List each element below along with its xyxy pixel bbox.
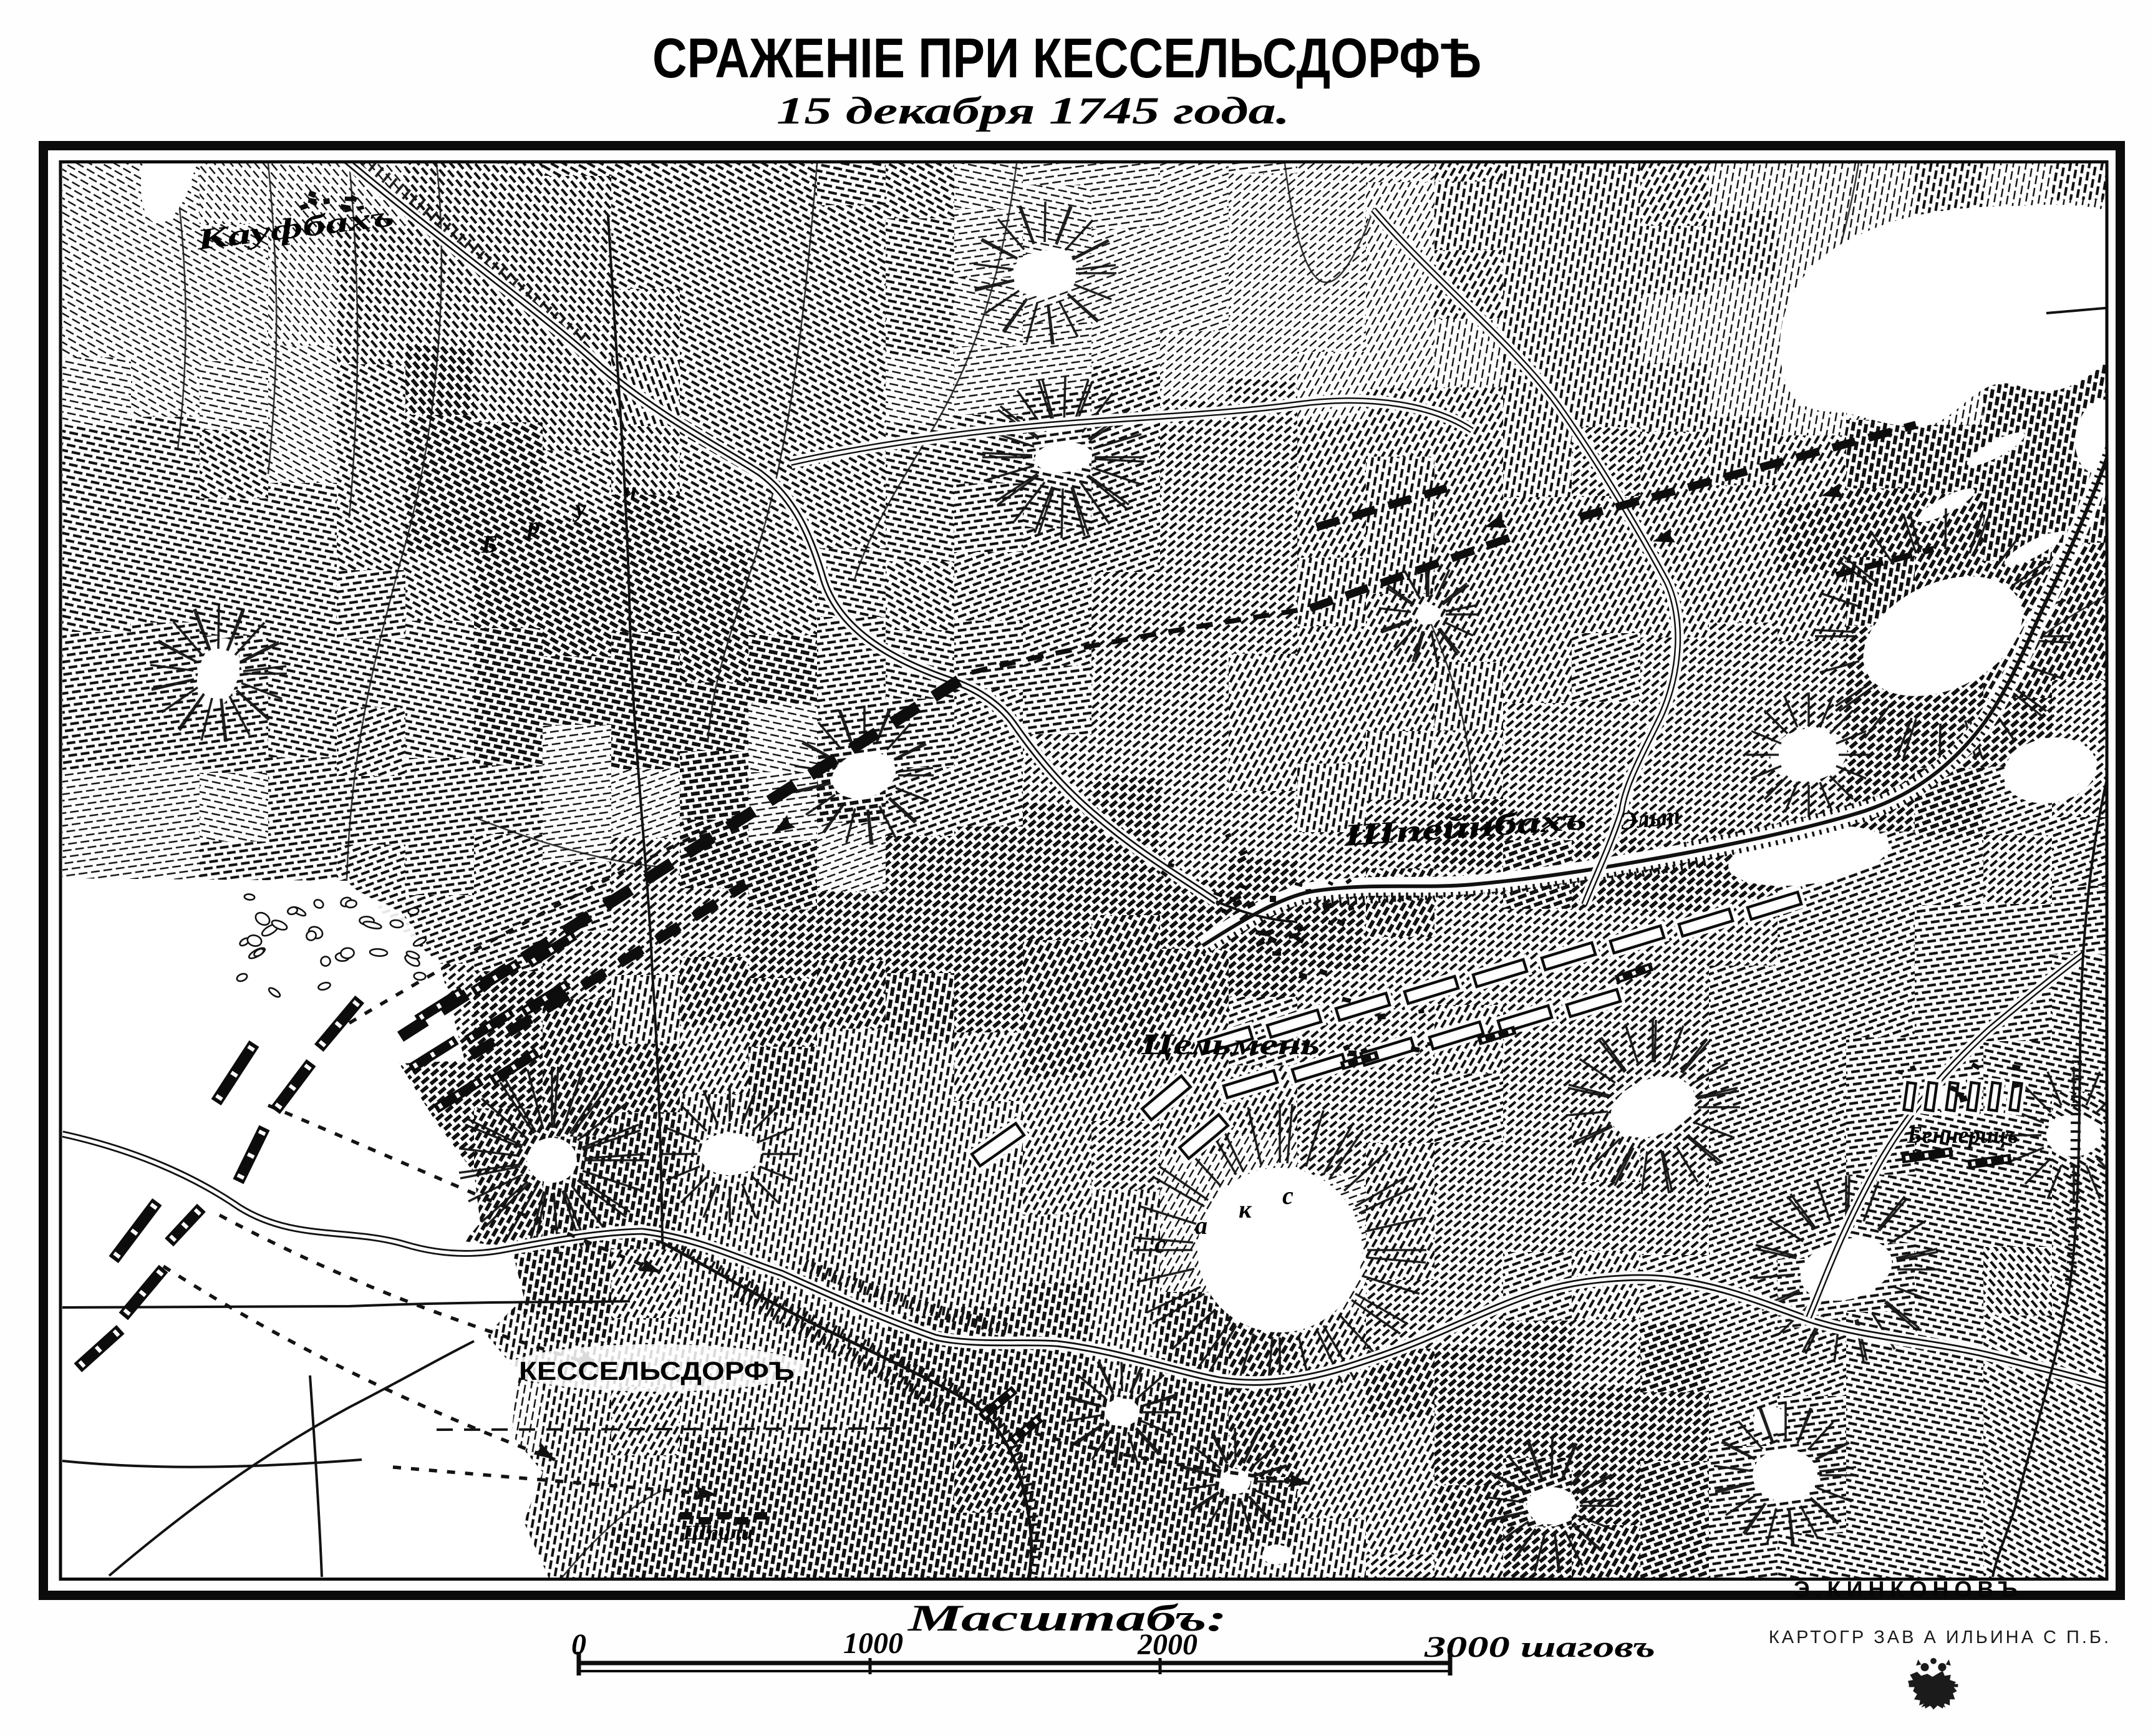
svg-text:с: с xyxy=(1282,1181,1294,1210)
svg-text:КАРТОГР ЗАВ А ИЛЬИНА С П.Б: КАРТОГР ЗАВ А ИЛЬИНА С П.Б. xyxy=(1769,1627,2111,1647)
svg-text:1000: 1000 xyxy=(843,1627,903,1660)
svg-text:Б: Б xyxy=(481,530,497,558)
svg-text:2000: 2000 xyxy=(1137,1628,1197,1661)
svg-text:Цельмень: Цельмень xyxy=(1141,1028,1320,1061)
svg-text:Шпили: Шпили xyxy=(682,1521,753,1544)
svg-text:Беннерицъ: Беннерицъ xyxy=(1907,1122,2018,1148)
svg-text:у: у xyxy=(573,494,586,522)
svg-text:р: р xyxy=(526,512,540,540)
svg-text:а: а xyxy=(1195,1211,1207,1239)
svg-text:с: с xyxy=(1154,1230,1166,1258)
svg-text:15 декабря 1745 года.: 15 декабря 1745 года. xyxy=(777,90,1290,132)
svg-text:к: к xyxy=(1239,1195,1252,1223)
svg-text:СРАЖЕНІЕ ПРИ КЕССЕЛЬСДОРФѢ: СРАЖЕНІЕ ПРИ КЕССЕЛЬСДОРФѢ xyxy=(652,27,1482,90)
svg-text:КЕССЕЛЬСДОРФЪ: КЕССЕЛЬСДОРФЪ xyxy=(519,1356,795,1385)
svg-text:Э.КИНКОНОВЪ: Э.КИНКОНОВЪ xyxy=(1794,1576,2023,1602)
svg-text:ч: ч xyxy=(624,477,637,505)
svg-text:3000 шаговъ: 3000 шаговъ xyxy=(1424,1631,1655,1664)
